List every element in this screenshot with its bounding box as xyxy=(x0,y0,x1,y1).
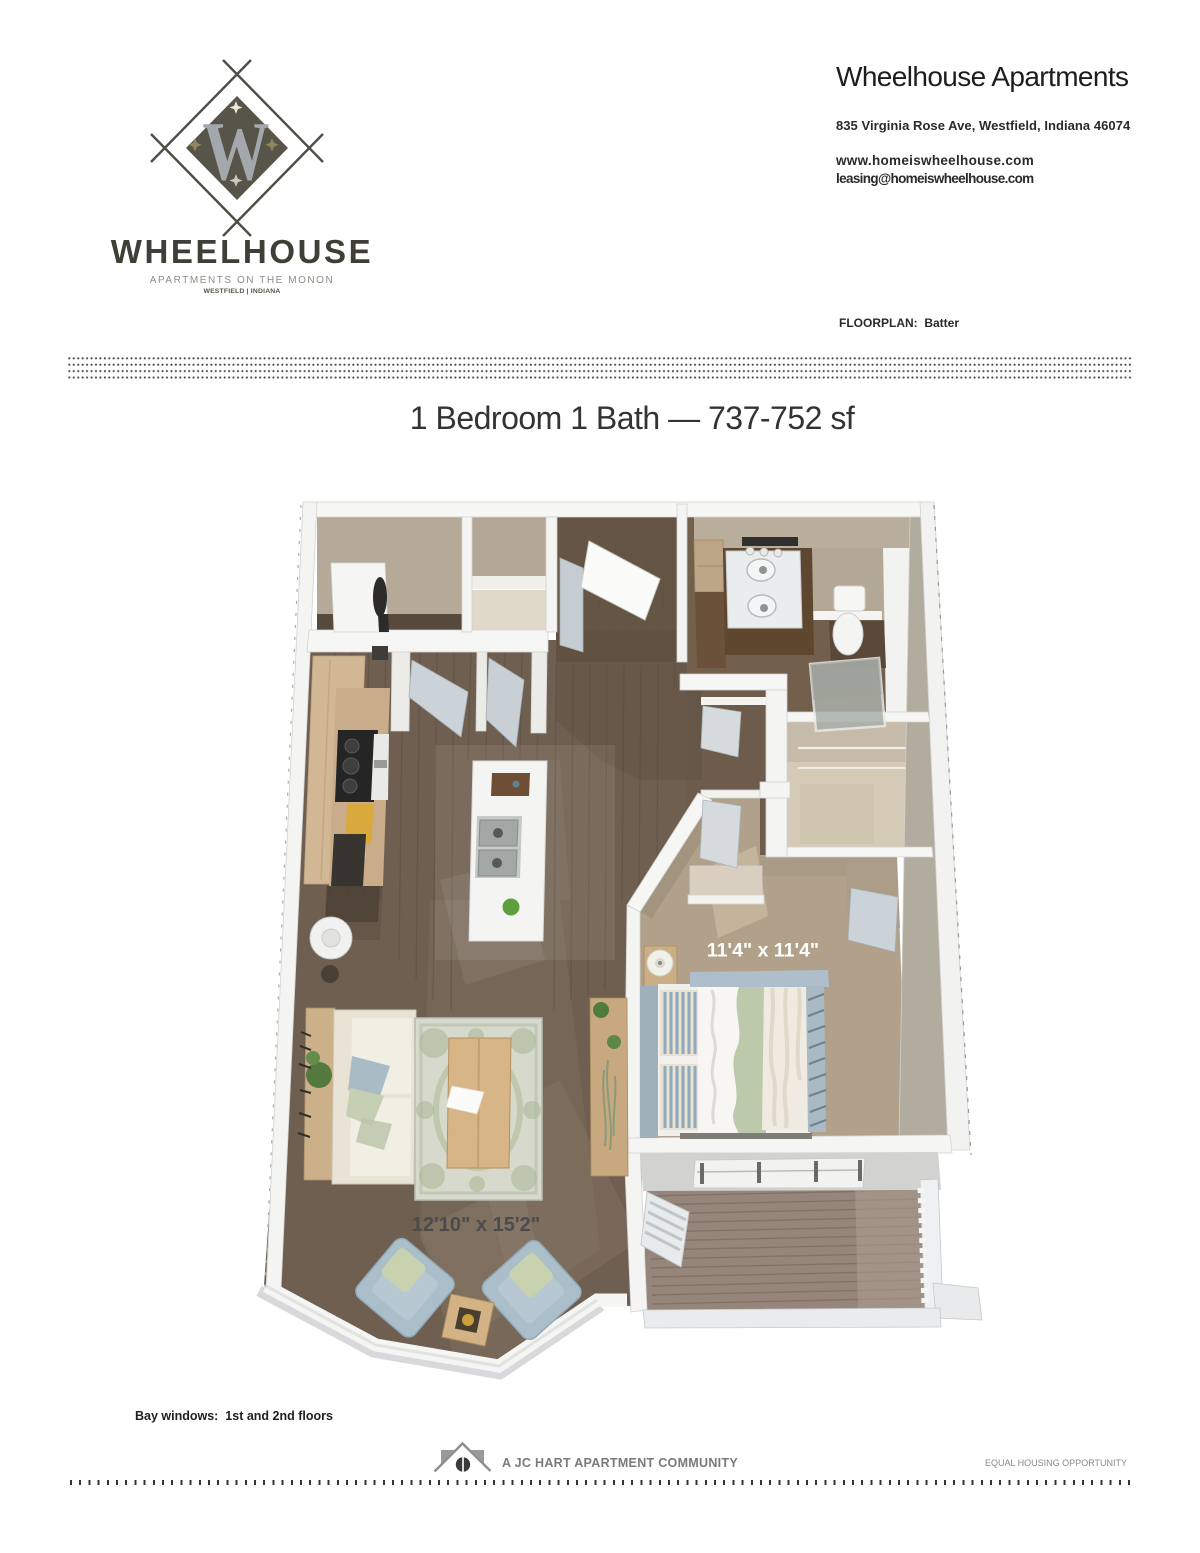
svg-text:12'10" x 15'2": 12'10" x 15'2" xyxy=(412,1214,541,1236)
svg-text:11'4" x 11'4": 11'4" x 11'4" xyxy=(707,940,819,962)
